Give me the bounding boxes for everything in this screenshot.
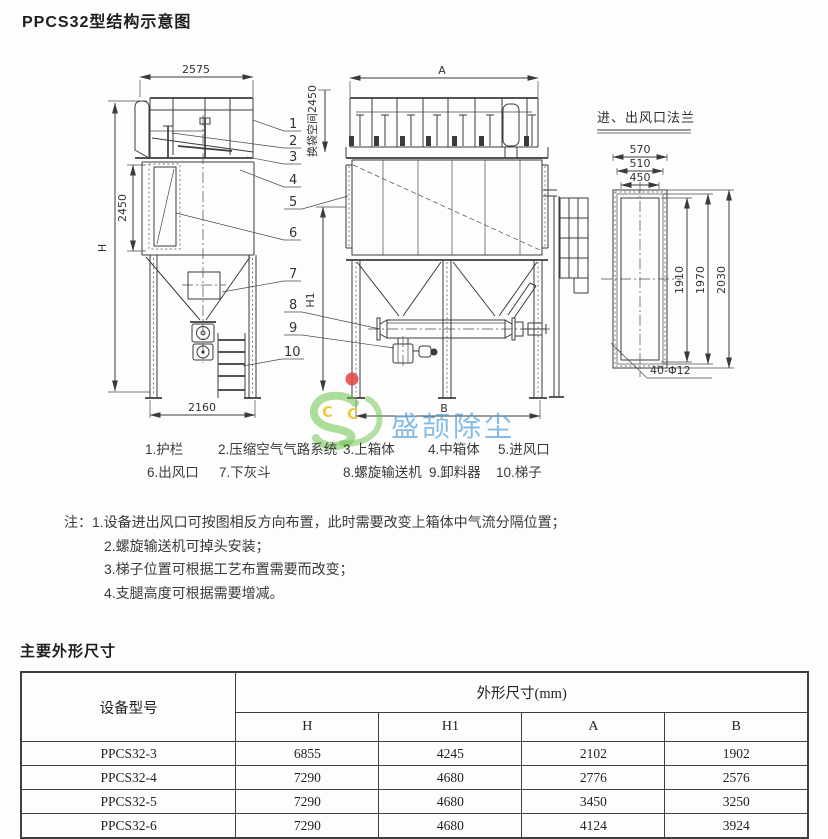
flange-view: 进、出风口法兰 570 510 450 1910 1970 2030 40-Φ1… <box>597 111 734 378</box>
cell-h1: 4680 <box>379 766 522 790</box>
table-row: PPCS32-6 7290 4680 4124 3924 <box>21 814 808 839</box>
cell-h1: 4680 <box>379 814 522 839</box>
legend-item-3: 3.上箱体 <box>343 438 395 458</box>
callout-5: 5 <box>289 195 297 210</box>
page: { "page": { "title": "PPCS32型结构示意图" }, "… <box>0 0 828 837</box>
watermark-red-dot <box>346 373 359 386</box>
dim-front-width-label: 2575 <box>182 63 210 76</box>
cell-h: 7290 <box>236 814 379 839</box>
legend-item-10: 10.梯子 <box>496 461 542 481</box>
side-view: A 换袋空间2450 <box>304 64 588 419</box>
legend-item-1: 1.护栏 <box>145 438 183 458</box>
flange-dim-450: 450 <box>630 171 651 184</box>
flange-dim-2030: 2030 <box>715 266 728 294</box>
section-title: 主要外形尺寸 <box>20 640 116 661</box>
dim-front-base-width-label: 2160 <box>188 401 216 414</box>
cell-h: 6855 <box>236 742 379 766</box>
cell-model: PPCS32-4 <box>21 766 236 790</box>
legend-item-6: 6.出风口 <box>147 461 199 481</box>
legend-item-5: 5.进风口 <box>498 438 550 458</box>
cell-a: 4124 <box>522 814 665 839</box>
table-row: PPCS32-5 7290 4680 3450 3250 <box>21 790 808 814</box>
col-header-h1: H1 <box>379 713 522 742</box>
note-3: 3.梯子位置可根据工艺布置需要而改变； <box>104 558 784 582</box>
legend-item-2: 2.压缩空气气路系统 <box>218 438 337 458</box>
cell-b: 3924 <box>665 814 808 839</box>
callout-7: 7 <box>289 267 297 282</box>
table-row: PPCS32-4 7290 4680 2776 2576 <box>21 766 808 790</box>
note-2: 2.螺旋输送机可掉头安装； <box>104 535 784 559</box>
flange-dim-1970: 1970 <box>694 266 707 294</box>
callout-10: 10 <box>284 345 301 360</box>
cell-b: 2576 <box>665 766 808 790</box>
notes-block: 注：1.设备进出风口可按图相反方向布置，此时需要改变上箱体中气流分隔位置； 2.… <box>64 511 784 605</box>
callout-8: 8 <box>289 298 297 313</box>
callout-9: 9 <box>289 321 297 336</box>
callout-6: 6 <box>289 226 297 241</box>
legend-item-9: 9.卸料器 <box>429 461 481 481</box>
legend-item-4: 4.中箱体 <box>428 438 480 458</box>
dimensions-table: 设备型号 外形尺寸(mm) H H1 A B PPCS32-3 6855 424… <box>20 671 809 839</box>
dim-bag-space-label: 换袋空间2450 <box>305 85 319 157</box>
notes-prefix: 注： <box>64 514 92 530</box>
cell-model: PPCS32-3 <box>21 742 236 766</box>
dim-front-height-label: H <box>96 244 109 252</box>
col-header-b: B <box>665 713 808 742</box>
callout-2: 2 <box>289 134 297 149</box>
note-1: 1.设备进出风口可按图相反方向布置，此时需要改变上箱体中气流分隔位置； <box>92 514 566 530</box>
flange-view-title: 进、出风口法兰 <box>597 111 695 126</box>
col-header-model: 设备型号 <box>21 672 236 742</box>
flange-dim-570: 570 <box>630 143 651 156</box>
cell-model: PPCS32-6 <box>21 814 236 839</box>
cell-a: 3450 <box>522 790 665 814</box>
dim-side-width-label: A <box>438 64 446 77</box>
col-header-group: 外形尺寸(mm) <box>236 672 808 713</box>
watermark-logo: C C 盛颉除尘 <box>314 373 515 446</box>
table-row: PPCS32-3 6855 4245 2102 1902 <box>21 742 808 766</box>
cell-h: 7290 <box>236 766 379 790</box>
flange-dim-1910: 1910 <box>673 266 686 294</box>
cell-h1: 4245 <box>379 742 522 766</box>
structure-diagram: 2575 H 2450 <box>0 0 828 460</box>
callout-1: 1 <box>289 117 297 132</box>
cell-a: 2102 <box>522 742 665 766</box>
legend-item-7: 7.下灰斗 <box>219 461 271 481</box>
flange-dim-510: 510 <box>630 157 651 170</box>
front-view: 2575 H 2450 <box>96 63 261 418</box>
flange-bolt-note: 40-Φ12 <box>650 364 691 377</box>
legend-item-8: 8.螺旋输送机 <box>343 461 422 481</box>
watermark-letter-c1: C <box>322 403 333 421</box>
cell-h1: 4680 <box>379 790 522 814</box>
col-header-h: H <box>236 713 379 742</box>
watermark-letter-c2: C <box>347 405 358 423</box>
dim-front-upper-height-label: 2450 <box>116 194 129 222</box>
cell-model: PPCS32-5 <box>21 790 236 814</box>
cell-h: 7290 <box>236 790 379 814</box>
cell-a: 2776 <box>522 766 665 790</box>
col-header-a: A <box>522 713 665 742</box>
cell-b: 3250 <box>665 790 808 814</box>
callout-4: 4 <box>289 173 297 188</box>
note-4: 4.支腿高度可根据需要增减。 <box>104 582 784 606</box>
cell-b: 1902 <box>665 742 808 766</box>
callout-3: 3 <box>289 150 297 165</box>
dim-side-height-label: H1 <box>304 292 317 307</box>
